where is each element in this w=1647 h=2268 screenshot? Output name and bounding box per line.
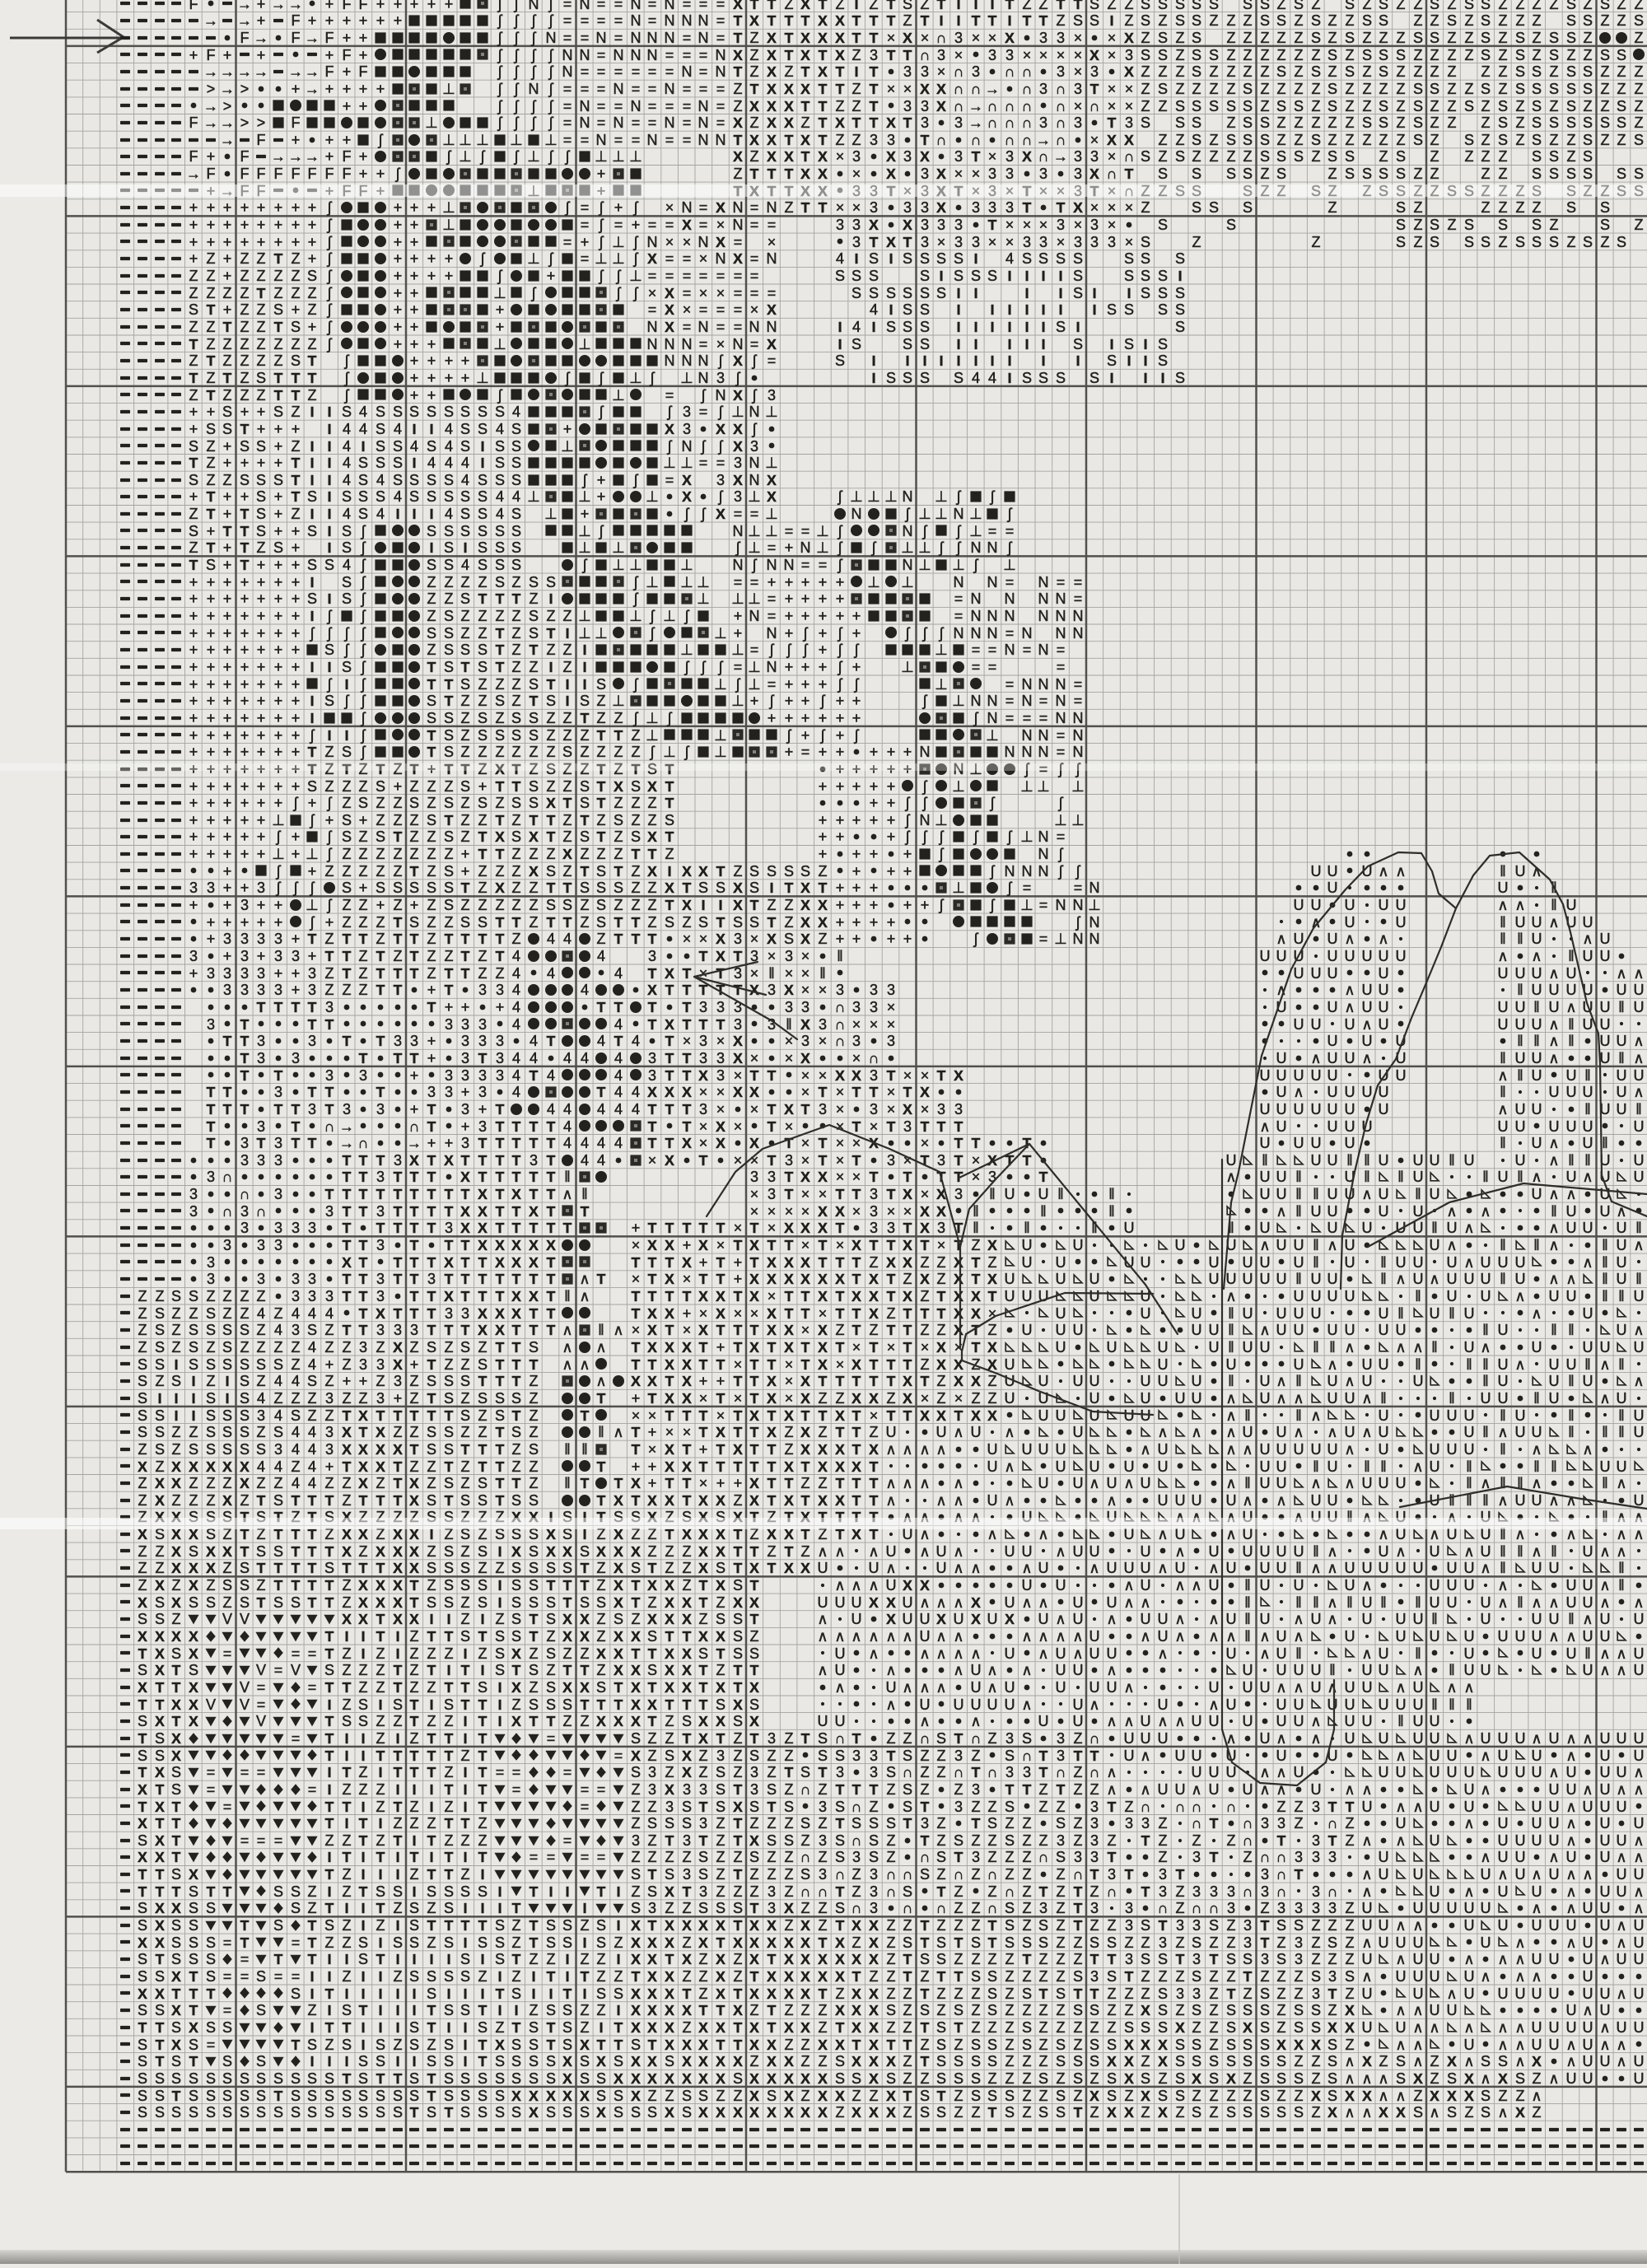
svg-text:33333+××333‖‖‖U‖UUUUU‖U∧∧UUU‖: 33333+××333‖‖‖U‖UUUUU‖U∧∧UUU‖ (240, 1220, 1642, 1236)
svg-text:SSS==ZZSSSZSSSZSSSZZZZSSSSSSZZ: SSS==ZZSSSZSSSZSSSZZZZSSSSSSZZSSZZ3ZSZZ3… (171, 1934, 1645, 1951)
svg-text:SSSS=SSSZZZZZZZSSZZZZZZZ3SS3SS: SSSS=SSSZZZZZZZSSZZZZZZZ3SS3SS3S3ZZZU∧UU… (138, 1951, 1645, 1967)
svg-text:I: I (310, 574, 315, 590)
svg-text:SSV=VSZZZZSSZZSZ∧U∧∧U∧∧UU∧UUUU: SSV=VSZZZZSSZZSZ∧U∧∧U∧∧UU∧UUUU‖UU∧‖UUU∧∧… (138, 1662, 1645, 1678)
svg-text:++S++SZS4SSSSSSSS4ʃʃ3=ʃ⊥N⊥: ++S++SZS4SSSSSSSS4ʃʃ3=ʃ⊥N⊥ (189, 404, 778, 420)
svg-text:ZSZSZSZZZZ4ZZ3ZZSZSZS∧∧+××××UU: ZSZSZSZZZZ4ZZ3ZZSZSZS∧∧+××××UUUU‖UU‖‖∧∧∧… (138, 1339, 1645, 1356)
svg-text:I: I (310, 608, 315, 624)
